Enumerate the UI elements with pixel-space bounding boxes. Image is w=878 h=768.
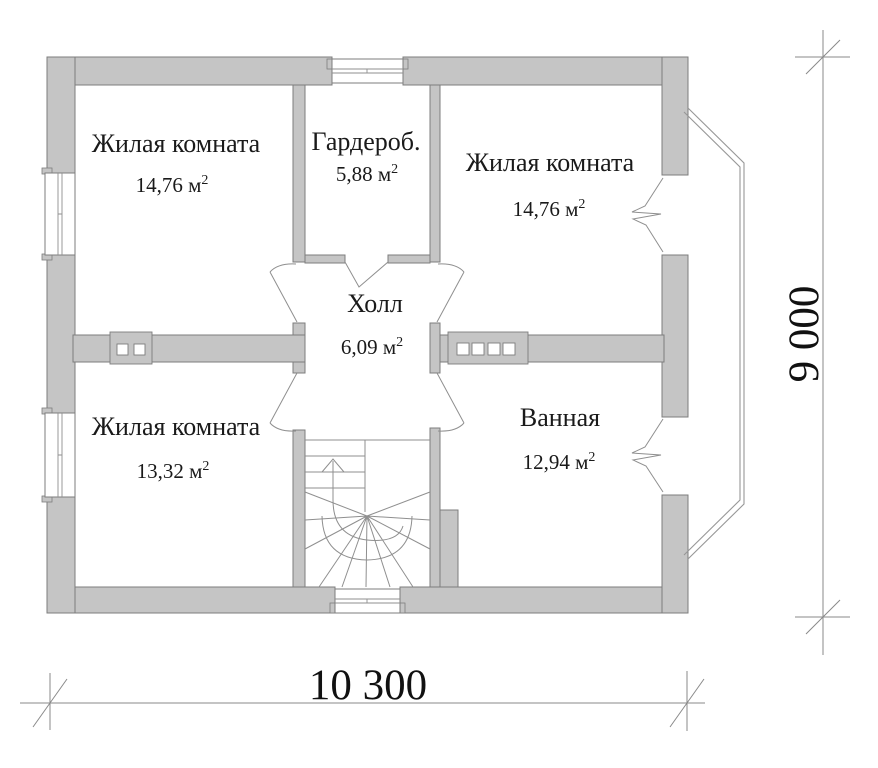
room-area-living-top-right: 14,76 м2 [513, 197, 586, 221]
wall-segment [305, 255, 345, 263]
dimension-bottom: 10 300 [20, 662, 705, 731]
room-area-living-bottom-left: 13,32 м2 [137, 459, 210, 483]
bay-window-inner-glass [684, 112, 740, 555]
wall-segment [662, 495, 688, 613]
wall-segment [47, 255, 75, 413]
wall-segment [662, 57, 688, 175]
wall-segment [430, 85, 440, 262]
wall-segment [403, 57, 688, 85]
bay-window [684, 108, 744, 559]
vent-cell [488, 343, 500, 355]
vent-cell [503, 343, 515, 355]
floor-plan: 10 300 9 000 Жилая комната 14,76 м2 Гард… [0, 0, 878, 768]
wall-opening-break-lower [632, 419, 663, 492]
window-frame [335, 589, 400, 613]
window-left-lower [42, 408, 75, 502]
door-swing-room-top-left [270, 264, 297, 322]
wall-segment [73, 335, 305, 362]
wall-segment [388, 255, 430, 263]
room-area-wardrobe: 5,88 м2 [336, 162, 398, 186]
vent-box-outline [110, 332, 152, 364]
door-swing-wardrobe [345, 262, 388, 287]
wall-segment [47, 497, 75, 613]
wall-segment [47, 57, 75, 173]
room-label-living-top-left: Жилая комната [92, 129, 261, 158]
room-label-bathroom: Ванная [520, 403, 600, 432]
vent-cell [134, 344, 145, 355]
door-swing-bathroom [437, 373, 464, 431]
dimension-height-label: 9 000 [781, 286, 828, 383]
stair-winders [305, 492, 430, 587]
wall-segment [47, 587, 335, 613]
room-label-hall: Холл [347, 289, 403, 318]
wall-opening-break-upper [632, 178, 663, 252]
wall-segment [430, 323, 440, 373]
window-bottom [330, 589, 405, 613]
room-label-living-top-right: Жилая комната [466, 148, 635, 177]
room-area-bathroom: 12,94 м2 [523, 450, 596, 474]
room-label-wardrobe: Гардероб. [311, 127, 420, 156]
vent-cell [457, 343, 469, 355]
wall-segment [293, 85, 305, 262]
vent-cell [472, 343, 484, 355]
stairs [305, 440, 430, 587]
door-swing-room-top-right [437, 264, 464, 322]
wall-segment [440, 510, 458, 587]
room-area-living-top-left: 14,76 м2 [136, 173, 209, 197]
dimension-width-label: 10 300 [309, 662, 427, 709]
wall-segment [47, 57, 332, 85]
dimension-right: 9 000 [781, 30, 850, 655]
bay-window-outer-glass [688, 108, 744, 559]
floor-plan-drawing: 10 300 9 000 Жилая комната 14,76 м2 Гард… [0, 0, 878, 768]
wall-segment [400, 587, 688, 613]
door-swing-room-bottom-left [270, 373, 297, 431]
wall-segment [293, 430, 305, 587]
vent-cell [117, 344, 128, 355]
wall-segment [430, 428, 440, 587]
room-area-hall: 6,09 м2 [341, 335, 403, 359]
wall-segment [662, 255, 688, 417]
room-labels: Жилая комната 14,76 м2 Гардероб. 5,88 м2… [92, 127, 635, 483]
room-label-living-bottom-left: Жилая комната [92, 412, 261, 441]
window-top [327, 59, 408, 83]
vent-box-right [448, 332, 528, 364]
window-left-upper [42, 168, 75, 260]
vent-box-left [110, 332, 152, 364]
window-frame [332, 59, 403, 83]
